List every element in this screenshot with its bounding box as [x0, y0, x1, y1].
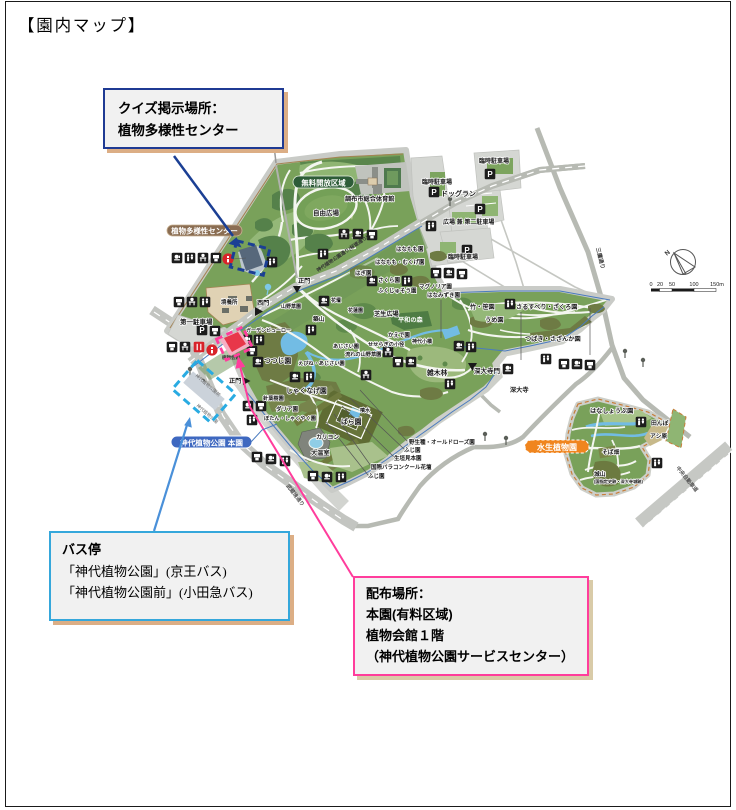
svg-text:ふじ園: ふじ園 [368, 472, 385, 480]
svg-text:調布市総合体育館: 調布市総合体育館 [345, 195, 395, 203]
svg-text:流れの山野草園: 流れの山野草園 [345, 350, 381, 358]
svg-text:噴水: 噴水 [360, 407, 371, 414]
svg-text:20: 20 [657, 282, 663, 288]
svg-text:国際バラコンクール花壇: 国際バラコンクール花壇 [371, 463, 432, 471]
svg-text:城山: 城山 [594, 470, 606, 478]
svg-text:せせらぎの小径: せせらぎの小径 [368, 340, 405, 348]
svg-text:神代植物公園 本園: 神代植物公園 本園 [180, 438, 243, 448]
svg-text:ぼたん・しゃくやく園: ぼたん・しゃくやく園 [264, 414, 316, 422]
svg-text:150m: 150m [710, 282, 724, 288]
svg-text:境養所: 境養所 [221, 298, 238, 306]
svg-text:ふじ園: ふじ園 [404, 446, 421, 454]
svg-text:ふくじゅそう園: ふくじゅそう園 [378, 287, 417, 295]
svg-text:しゃくなげ園: しゃくなげ園 [286, 386, 327, 395]
svg-text:山野草園: 山野草園 [281, 303, 301, 310]
svg-text:臨時駐車場: 臨時駐車場 [422, 178, 452, 186]
svg-text:田んぼ: 田んぼ [651, 419, 669, 427]
svg-text:ばら園: ばら園 [341, 417, 362, 426]
svg-text:そば畑: そば畑 [602, 448, 620, 456]
svg-text:ドッグラン: ドッグラン [441, 189, 476, 198]
svg-text:100: 100 [689, 282, 698, 288]
svg-text:花蓮園: 花蓮園 [348, 307, 363, 314]
svg-text:西門: 西門 [257, 299, 269, 307]
svg-text:かえで園: かえで園 [388, 331, 410, 339]
svg-text:正門: 正門 [298, 277, 310, 285]
svg-text:(国指定史跡・深大寺城跡): (国指定史跡・深大寺城跡) [594, 478, 643, 485]
svg-text:マグノリア園: マグノリア園 [419, 283, 452, 291]
svg-text:つばき・さざんか園: つばき・さざんか園 [525, 335, 581, 343]
svg-text:はなみずき園: はなみずき園 [427, 291, 461, 299]
svg-text:花壇: 花壇 [331, 297, 341, 304]
svg-text:カリヨン: カリヨン [316, 434, 339, 441]
svg-text:つつじ園: つつじ園 [264, 356, 291, 365]
svg-text:野生種・オールドローズ園: 野生種・オールドローズ園 [409, 438, 475, 446]
svg-text:第一駐車場: 第一駐車場 [180, 317, 213, 326]
svg-text:広場 兼 第二駐車場: 広場 兼 第二駐車場 [443, 218, 494, 226]
svg-text:はなもも園: はなもも園 [396, 245, 424, 253]
svg-text:自由広場: 自由広場 [313, 208, 340, 217]
svg-text:正門: 正門 [229, 377, 241, 385]
svg-text:さくら園: さくら園 [378, 276, 401, 284]
svg-text:雑木林: 雑木林 [426, 368, 448, 377]
svg-text:えびね・あじさい園: えびね・あじさい園 [298, 359, 345, 367]
svg-text:三鷹通り: 三鷹通り [594, 247, 607, 270]
svg-text:あじさい園: あじさい園 [333, 342, 359, 350]
svg-text:生垣見本園: 生垣見本園 [394, 454, 422, 462]
svg-text:築山: 築山 [312, 315, 325, 323]
svg-text:大温室: 大温室 [311, 449, 330, 457]
svg-text:N: N [664, 249, 672, 258]
svg-text:ダリア園: ダリア園 [276, 405, 299, 413]
svg-text:臨時駐車場: 臨時駐車場 [448, 253, 478, 261]
svg-text:はぎ園: はぎ園 [355, 269, 372, 277]
svg-text:0: 0 [649, 282, 652, 288]
svg-text:竹・笹園: 竹・笹園 [469, 303, 495, 311]
svg-text:深大寺: 深大寺 [510, 386, 529, 394]
svg-text:ガーデンビューロー: ガーデンビューロー [246, 327, 291, 334]
svg-text:はなしょうぶ園: はなしょうぶ園 [590, 407, 633, 415]
svg-text:神代小橋: 神代小橋 [412, 338, 432, 345]
svg-text:水生植物園: 水生植物園 [536, 442, 577, 452]
svg-text:50: 50 [669, 282, 675, 288]
svg-text:芝生広場: 芝生広場 [374, 310, 400, 318]
svg-text:平和の森: 平和の森 [398, 316, 424, 324]
svg-text:深大寺門: 深大寺門 [474, 366, 501, 375]
svg-text:はなもも・むくげ園: はなもも・むくげ園 [375, 258, 425, 266]
svg-text:さるすべり・ざくろ園: さるすべり・ざくろ園 [516, 303, 577, 311]
svg-text:アシ原: アシ原 [650, 432, 667, 440]
svg-text:うめ園: うめ園 [485, 316, 504, 324]
svg-text:臨時駐車場: 臨時駐車場 [479, 157, 509, 165]
svg-text:無料開放区域: 無料開放区域 [300, 179, 346, 188]
svg-text:針葉樹園: 針葉樹園 [263, 394, 284, 402]
